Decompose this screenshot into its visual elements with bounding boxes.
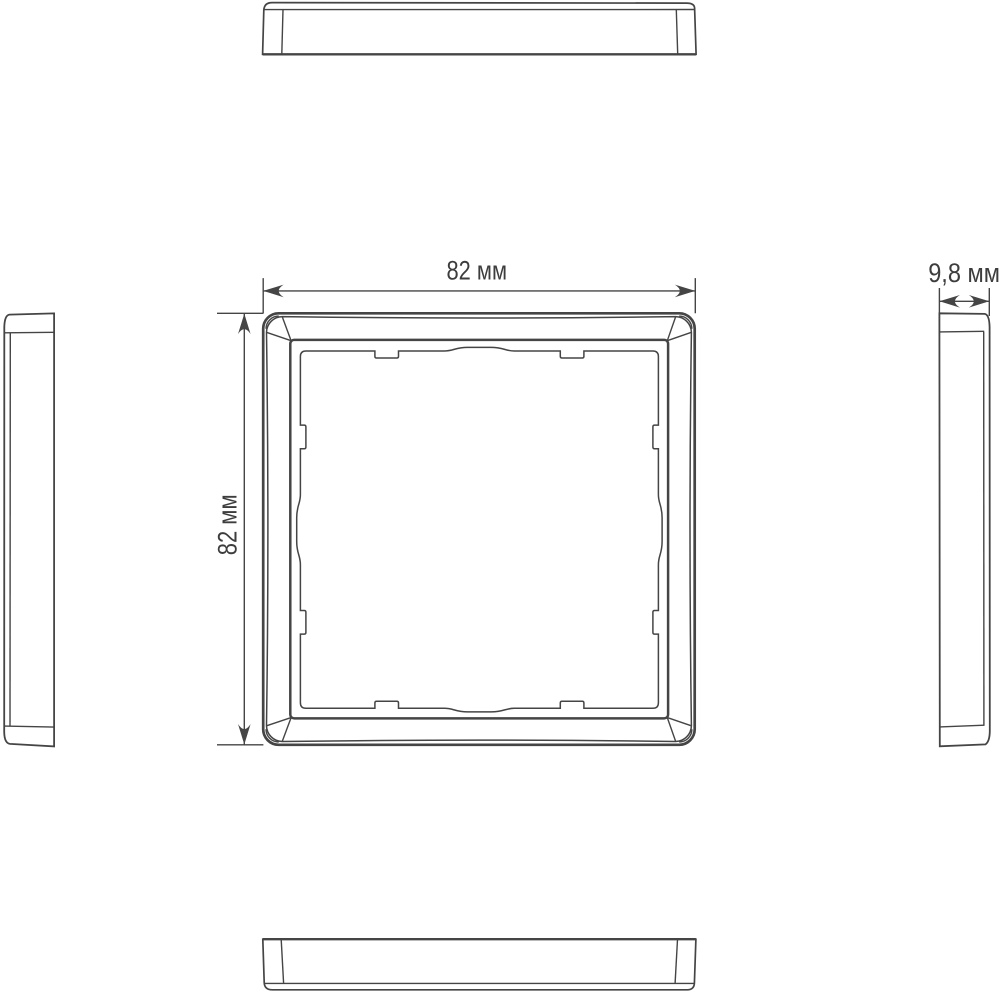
- svg-text:82 мм: 82 мм: [447, 255, 508, 285]
- svg-text:82 мм: 82 мм: [213, 494, 243, 555]
- svg-text:9,8 мм: 9,8 мм: [928, 258, 1000, 288]
